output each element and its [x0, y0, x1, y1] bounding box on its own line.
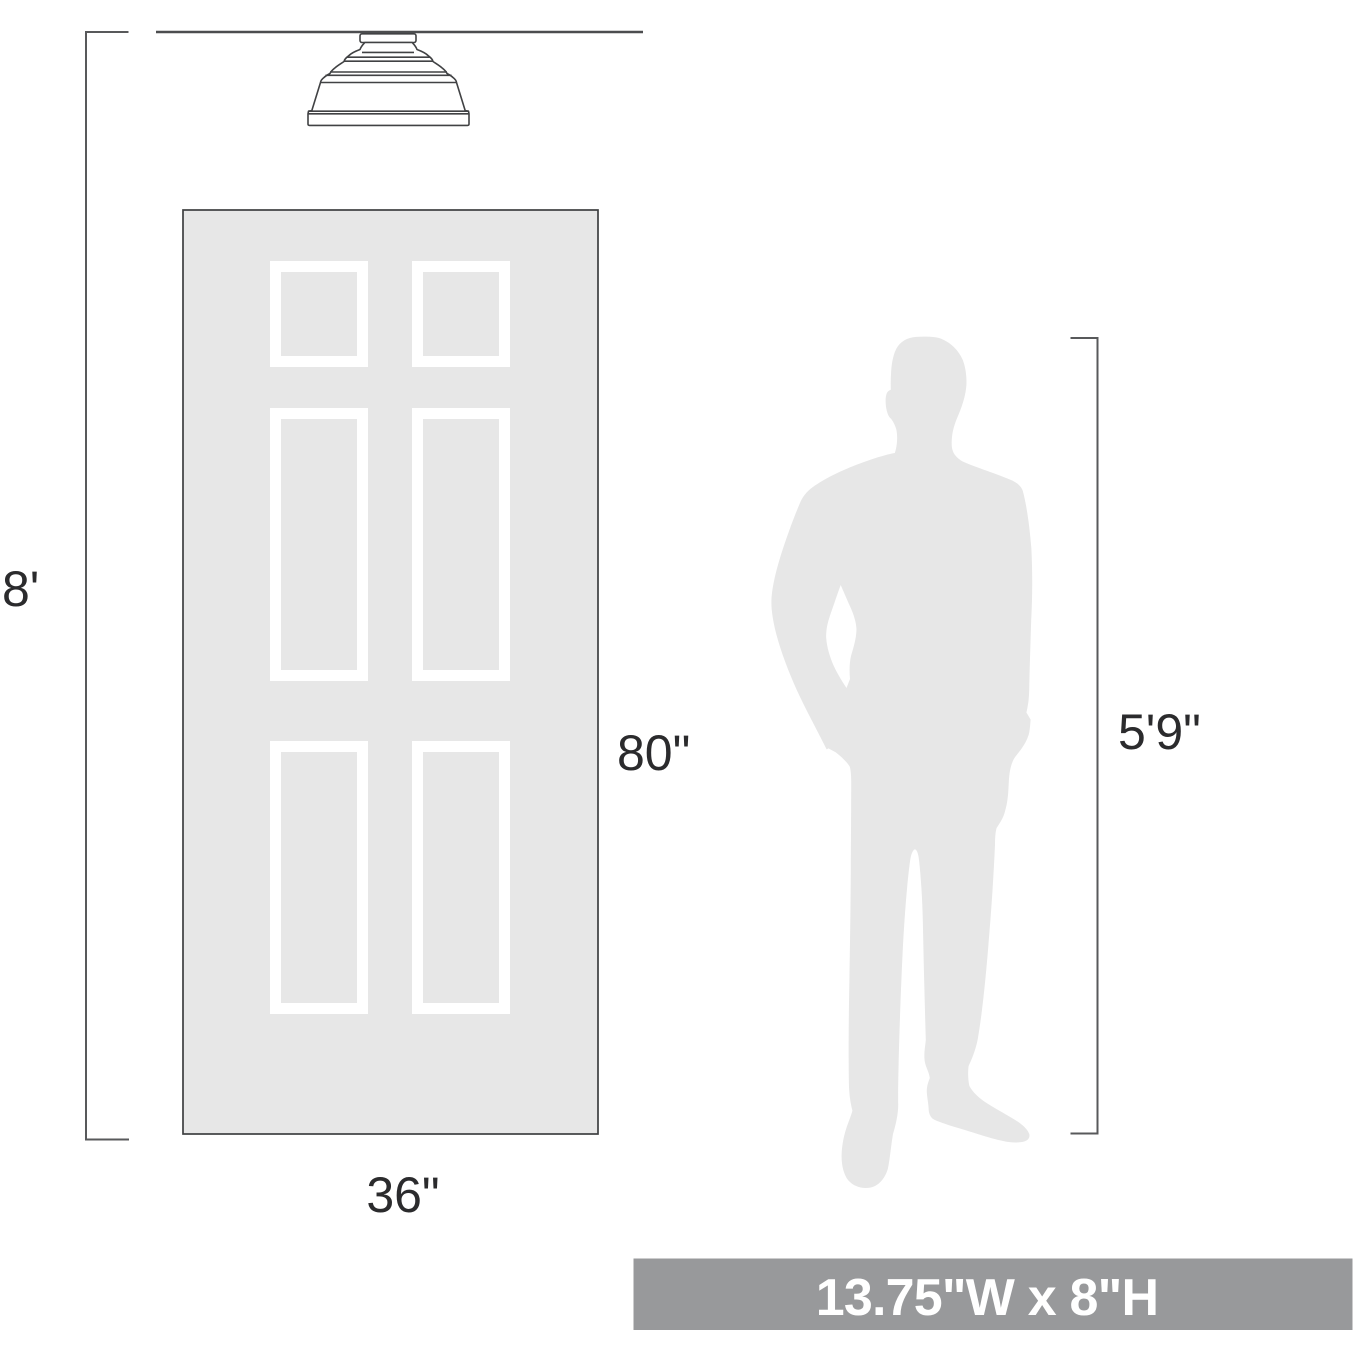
svg-text:5'9": 5'9" — [1118, 704, 1201, 760]
svg-text:80": 80" — [617, 725, 690, 781]
svg-text:8': 8' — [2, 561, 39, 617]
svg-text:13.75"W x 8"H: 13.75"W x 8"H — [816, 1269, 1158, 1327]
svg-text:36": 36" — [366, 1167, 439, 1223]
